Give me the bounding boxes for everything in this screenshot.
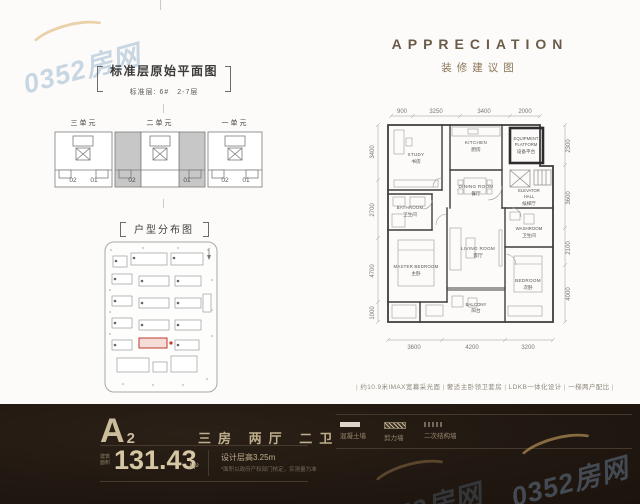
unit-number: 01 <box>183 177 191 184</box>
legend-item-secondary: 二次结构墙 <box>424 422 457 442</box>
footer-band: A 2 三房 两厅 二卫 建筑 面积 131.43 M² 设计层高3.25m *… <box>0 404 640 504</box>
disclaimer: *面积以政府产权部门核定，实测量为准 <box>221 465 317 473</box>
room-platform-cn: 设备平台 <box>517 148 536 155</box>
vertical-divider <box>208 450 209 476</box>
appreciation-title-block: APPRECIATION 装修建议图 <box>370 36 590 75</box>
dim-left-3: 4700 <box>370 264 376 278</box>
dim-bottom-2: 4200 <box>465 345 479 351</box>
legend-label: 剪力墙 <box>384 432 406 442</box>
unit-number: 01 <box>242 177 250 184</box>
room-platform-en2: PLATFORM <box>515 142 538 147</box>
floor-plan-diagram: 900 3250 3400 2000 3400 2700 4700 1000 2… <box>352 90 614 356</box>
standard-plan-title-block: 标准层原始平面图 标准层: 6# 2-7层 <box>104 62 224 97</box>
room-living-cn: 客厅 <box>473 252 483 259</box>
secondary-swatch-icon <box>424 422 444 427</box>
area-prefix: 建筑 面积 <box>100 454 110 466</box>
watermark-swoosh-icon <box>25 13 114 66</box>
legend-label: 混凝土墙 <box>340 430 366 440</box>
dim-top-3: 3400 <box>477 109 491 115</box>
room-bedroom-en: BEDROOM <box>515 278 541 283</box>
distribution-title: 户型分布图 <box>124 221 204 236</box>
watermark-text: 0352房网 <box>360 472 486 504</box>
standard-plan-title: 标准层原始平面图 <box>104 62 224 79</box>
building-label: 一单元 <box>222 118 249 127</box>
legend-item-concrete: 混凝土墙 <box>340 422 366 442</box>
room-wash-cn: 卫生间 <box>522 232 536 239</box>
area-prefix-2: 面积 <box>100 460 110 466</box>
dim-bottom-3: 3200 <box>521 345 535 351</box>
legend-label: 二次结构墙 <box>424 430 457 440</box>
room-hall-cn: 候梯厅 <box>522 200 536 207</box>
unit-number: 02 <box>128 177 136 184</box>
room-dining-cn: 餐厅 <box>471 190 481 197</box>
dim-right-2: 3600 <box>566 191 572 205</box>
dim-right-4: 4000 <box>566 287 572 301</box>
room-study-cn: 书房 <box>411 158 421 165</box>
appreciation-title-cn: 装修建议图 <box>370 60 590 75</box>
room-master-en: MASTER BEDROOM <box>393 264 438 269</box>
fold-mark-top <box>160 0 161 10</box>
building-label: 三单元 <box>71 118 98 127</box>
building-1-outline <box>55 132 112 187</box>
building-label: 二单元 <box>147 118 174 127</box>
room-bath-cn: 卫生间 <box>403 211 417 218</box>
room-study-en: STUDY <box>407 152 424 157</box>
height-note: 设计层高3.25m <box>221 452 275 463</box>
shear-swatch-icon <box>384 422 406 429</box>
watermark-swoosh-icon <box>367 452 456 504</box>
elevator-core <box>510 170 551 187</box>
room-balcony-en: BALCONY <box>466 302 487 307</box>
unit-number: 02 <box>69 177 77 184</box>
title-bracket-left <box>97 66 103 92</box>
room-master-cn: 主卧 <box>411 270 421 277</box>
fold-mark-mid2 <box>163 199 164 208</box>
dim-left-2: 2700 <box>370 203 376 217</box>
dim-left-4: 1000 <box>370 306 376 320</box>
legend-item-shear: 剪力墙 <box>384 422 406 442</box>
room-bath-en: BATHROOM <box>397 205 424 210</box>
feature-item: 约10.9米IMAX宽幕采光面 <box>360 384 440 391</box>
room-kitchen-en: KITCHEN <box>465 140 487 145</box>
divider-line <box>100 481 308 482</box>
poster-page: 0352房网 标准层原始平面图 标准层: 6# 2-7层 三单元 二单元 一单元… <box>0 0 640 504</box>
area-unit: M² <box>189 462 198 471</box>
wall-legend: 混凝土墙 剪力墙 二次结构墙 <box>336 414 632 449</box>
room-hall-en2: HALL <box>524 194 535 199</box>
highlight-marker <box>169 341 172 344</box>
dim-top-1: 900 <box>397 109 408 115</box>
standard-plan-subtitle: 标准层: 6# 2-7层 <box>104 87 224 97</box>
dim-left-1: 3400 <box>370 145 376 159</box>
site-plan-diagram <box>103 240 219 394</box>
dim-top-2: 3250 <box>429 109 443 115</box>
room-dining-en: DINING ROOM <box>459 184 494 189</box>
room-bedroom-cn: 次卧 <box>523 284 533 291</box>
dim-bottom-1: 3600 <box>407 345 421 351</box>
highlighted-building-6 <box>139 338 167 348</box>
concrete-swatch-icon <box>340 422 360 427</box>
unit-number: 02 <box>221 177 229 184</box>
title-bracket-right <box>225 66 231 92</box>
room-balcony-cn: 阳台 <box>471 307 481 314</box>
feature-item: LDKB一体化设计 <box>502 384 562 391</box>
unit-strip-diagram: 三单元 二单元 一单元 02 01 02 01 <box>48 112 266 192</box>
unit-code: A 2 <box>100 414 135 448</box>
unit-number: 01 <box>90 177 98 184</box>
room-living-en: LIVING ROOM <box>461 246 495 251</box>
appreciation-title-en: APPRECIATION <box>370 36 590 52</box>
room-kitchen-cn: 厨房 <box>471 146 481 153</box>
dim-right-1: 2300 <box>566 139 572 153</box>
room-hall-en1: ELEVATOR <box>518 188 540 193</box>
feature-item: 奢适主卧领卫套房 <box>440 384 502 391</box>
room-platform-en1: EQUIPMENT <box>514 136 539 141</box>
unit-code-letter: A <box>100 414 125 448</box>
dim-right-3: 2100 <box>566 241 572 255</box>
room-wash-en: WASHROOM <box>516 226 543 231</box>
feature-item: 一梯两户配比 <box>562 384 610 391</box>
watermark-bottom-center: 0352房网 <box>354 447 487 504</box>
building-3-outline <box>208 132 262 187</box>
watermark-text: 0352房网 <box>506 446 632 504</box>
dim-top-4: 2000 <box>518 109 532 115</box>
area-value: 131.43 <box>114 447 197 474</box>
feature-line: 约10.9米IMAX宽幕采光面奢适主卧领卫套房LDKB一体化设计一梯两户配比 <box>340 381 630 391</box>
